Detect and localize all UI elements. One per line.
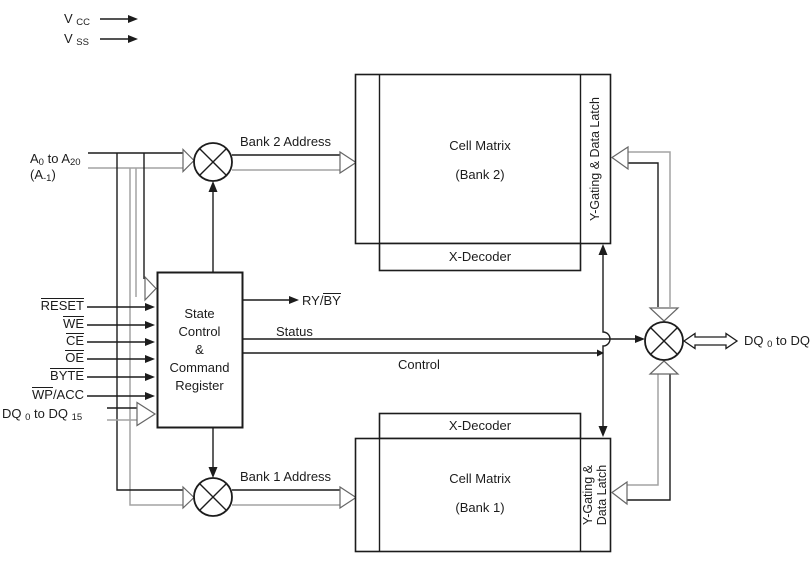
- decoder-link-line: [599, 244, 611, 437]
- bank2-cell-matrix-label: Cell Matrix: [380, 139, 580, 153]
- control-label: Control: [398, 358, 440, 372]
- state-line-1: State: [158, 305, 241, 323]
- wp-acc-label: WP/ACC: [14, 387, 84, 402]
- bank1-address-bus: [232, 487, 356, 508]
- control-signal-arrows: [87, 303, 155, 400]
- dq-input-bus: [107, 403, 155, 426]
- bank1-name-label: (Bank 1): [380, 501, 580, 515]
- bank1-y-gating-line2: Data Latch: [595, 465, 609, 525]
- diagram-linework: [0, 0, 812, 577]
- bank1-x-decoder-label: X-Decoder: [380, 419, 580, 433]
- address-input-label-2: (A-1): [30, 168, 56, 186]
- status-label: Status: [276, 325, 313, 339]
- dq-output-label: DQ 0 to DQ 15: [744, 334, 812, 352]
- bank1-data-bus: [612, 361, 678, 504]
- dq-data-mux: [645, 322, 683, 360]
- state-control-register-box-label: State Control & Command Register: [158, 305, 241, 395]
- bank1-y-gating-label: Y-Gating & Data Latch: [581, 465, 609, 525]
- dq-bidirectional-arrow: [684, 334, 737, 349]
- vss-arrow: [100, 35, 138, 43]
- state-line-5: Register: [158, 377, 241, 395]
- bank1-address-mux: [194, 478, 232, 516]
- bank1-y-gating-line1: Y-Gating &: [581, 465, 595, 525]
- state-line-2: Control: [158, 323, 241, 341]
- bank2-name-label: (Bank 2): [380, 168, 580, 182]
- vcc-label: V CC: [64, 12, 90, 30]
- block-diagram: V CC V SS A0 to A20 (A-1) RESET WE CE OE…: [0, 0, 812, 577]
- state-line-4: Command: [158, 359, 241, 377]
- ry-by-arrow: [242, 296, 299, 304]
- bank2-address-bus: [232, 152, 356, 173]
- oe-label: OE: [20, 350, 84, 365]
- vcc-arrow: [100, 15, 138, 23]
- bank1-cell-matrix-label: Cell Matrix: [380, 472, 580, 486]
- state-line-3: &: [158, 341, 241, 359]
- bank1-address-label: Bank 1 Address: [240, 470, 331, 484]
- vss-label: V SS: [64, 32, 89, 50]
- bank2-data-bus: [612, 147, 678, 321]
- bank2-address-label: Bank 2 Address: [240, 135, 331, 149]
- bank2-address-mux: [194, 143, 232, 181]
- we-label: WE: [20, 316, 84, 331]
- ce-label: CE: [20, 333, 84, 348]
- bank2-y-gating-label: Y-Gating & Data Latch: [588, 97, 602, 221]
- reset-label: RESET: [20, 298, 84, 313]
- ry-by-label: RY/BY: [302, 293, 341, 308]
- byte-label: BYTE: [20, 368, 84, 383]
- control-line: [242, 350, 604, 357]
- dq-input-label: DQ 0 to DQ 15: [2, 407, 82, 425]
- bank2-x-decoder-label: X-Decoder: [380, 250, 580, 264]
